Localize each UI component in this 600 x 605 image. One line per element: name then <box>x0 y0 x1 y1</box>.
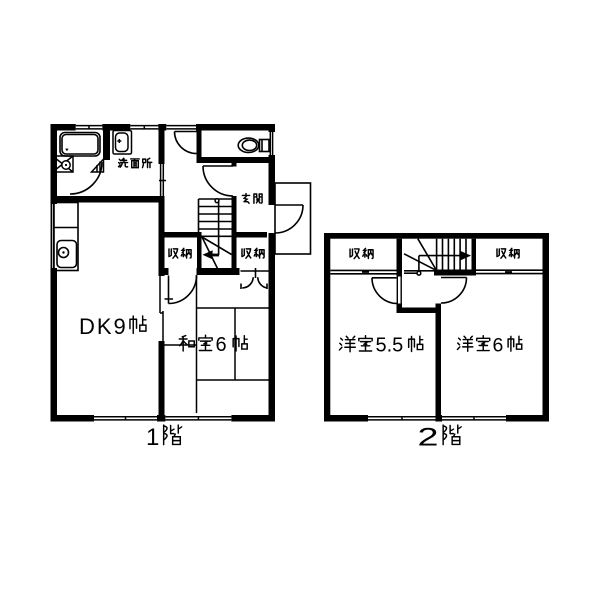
svg-text:5.5: 5.5 <box>376 335 404 357</box>
svg-text:6: 6 <box>493 335 504 357</box>
svg-text:6: 6 <box>216 334 227 356</box>
svg-text:2: 2 <box>418 424 439 452</box>
svg-text:DK9: DK9 <box>79 314 128 339</box>
svg-text:1: 1 <box>146 424 159 451</box>
